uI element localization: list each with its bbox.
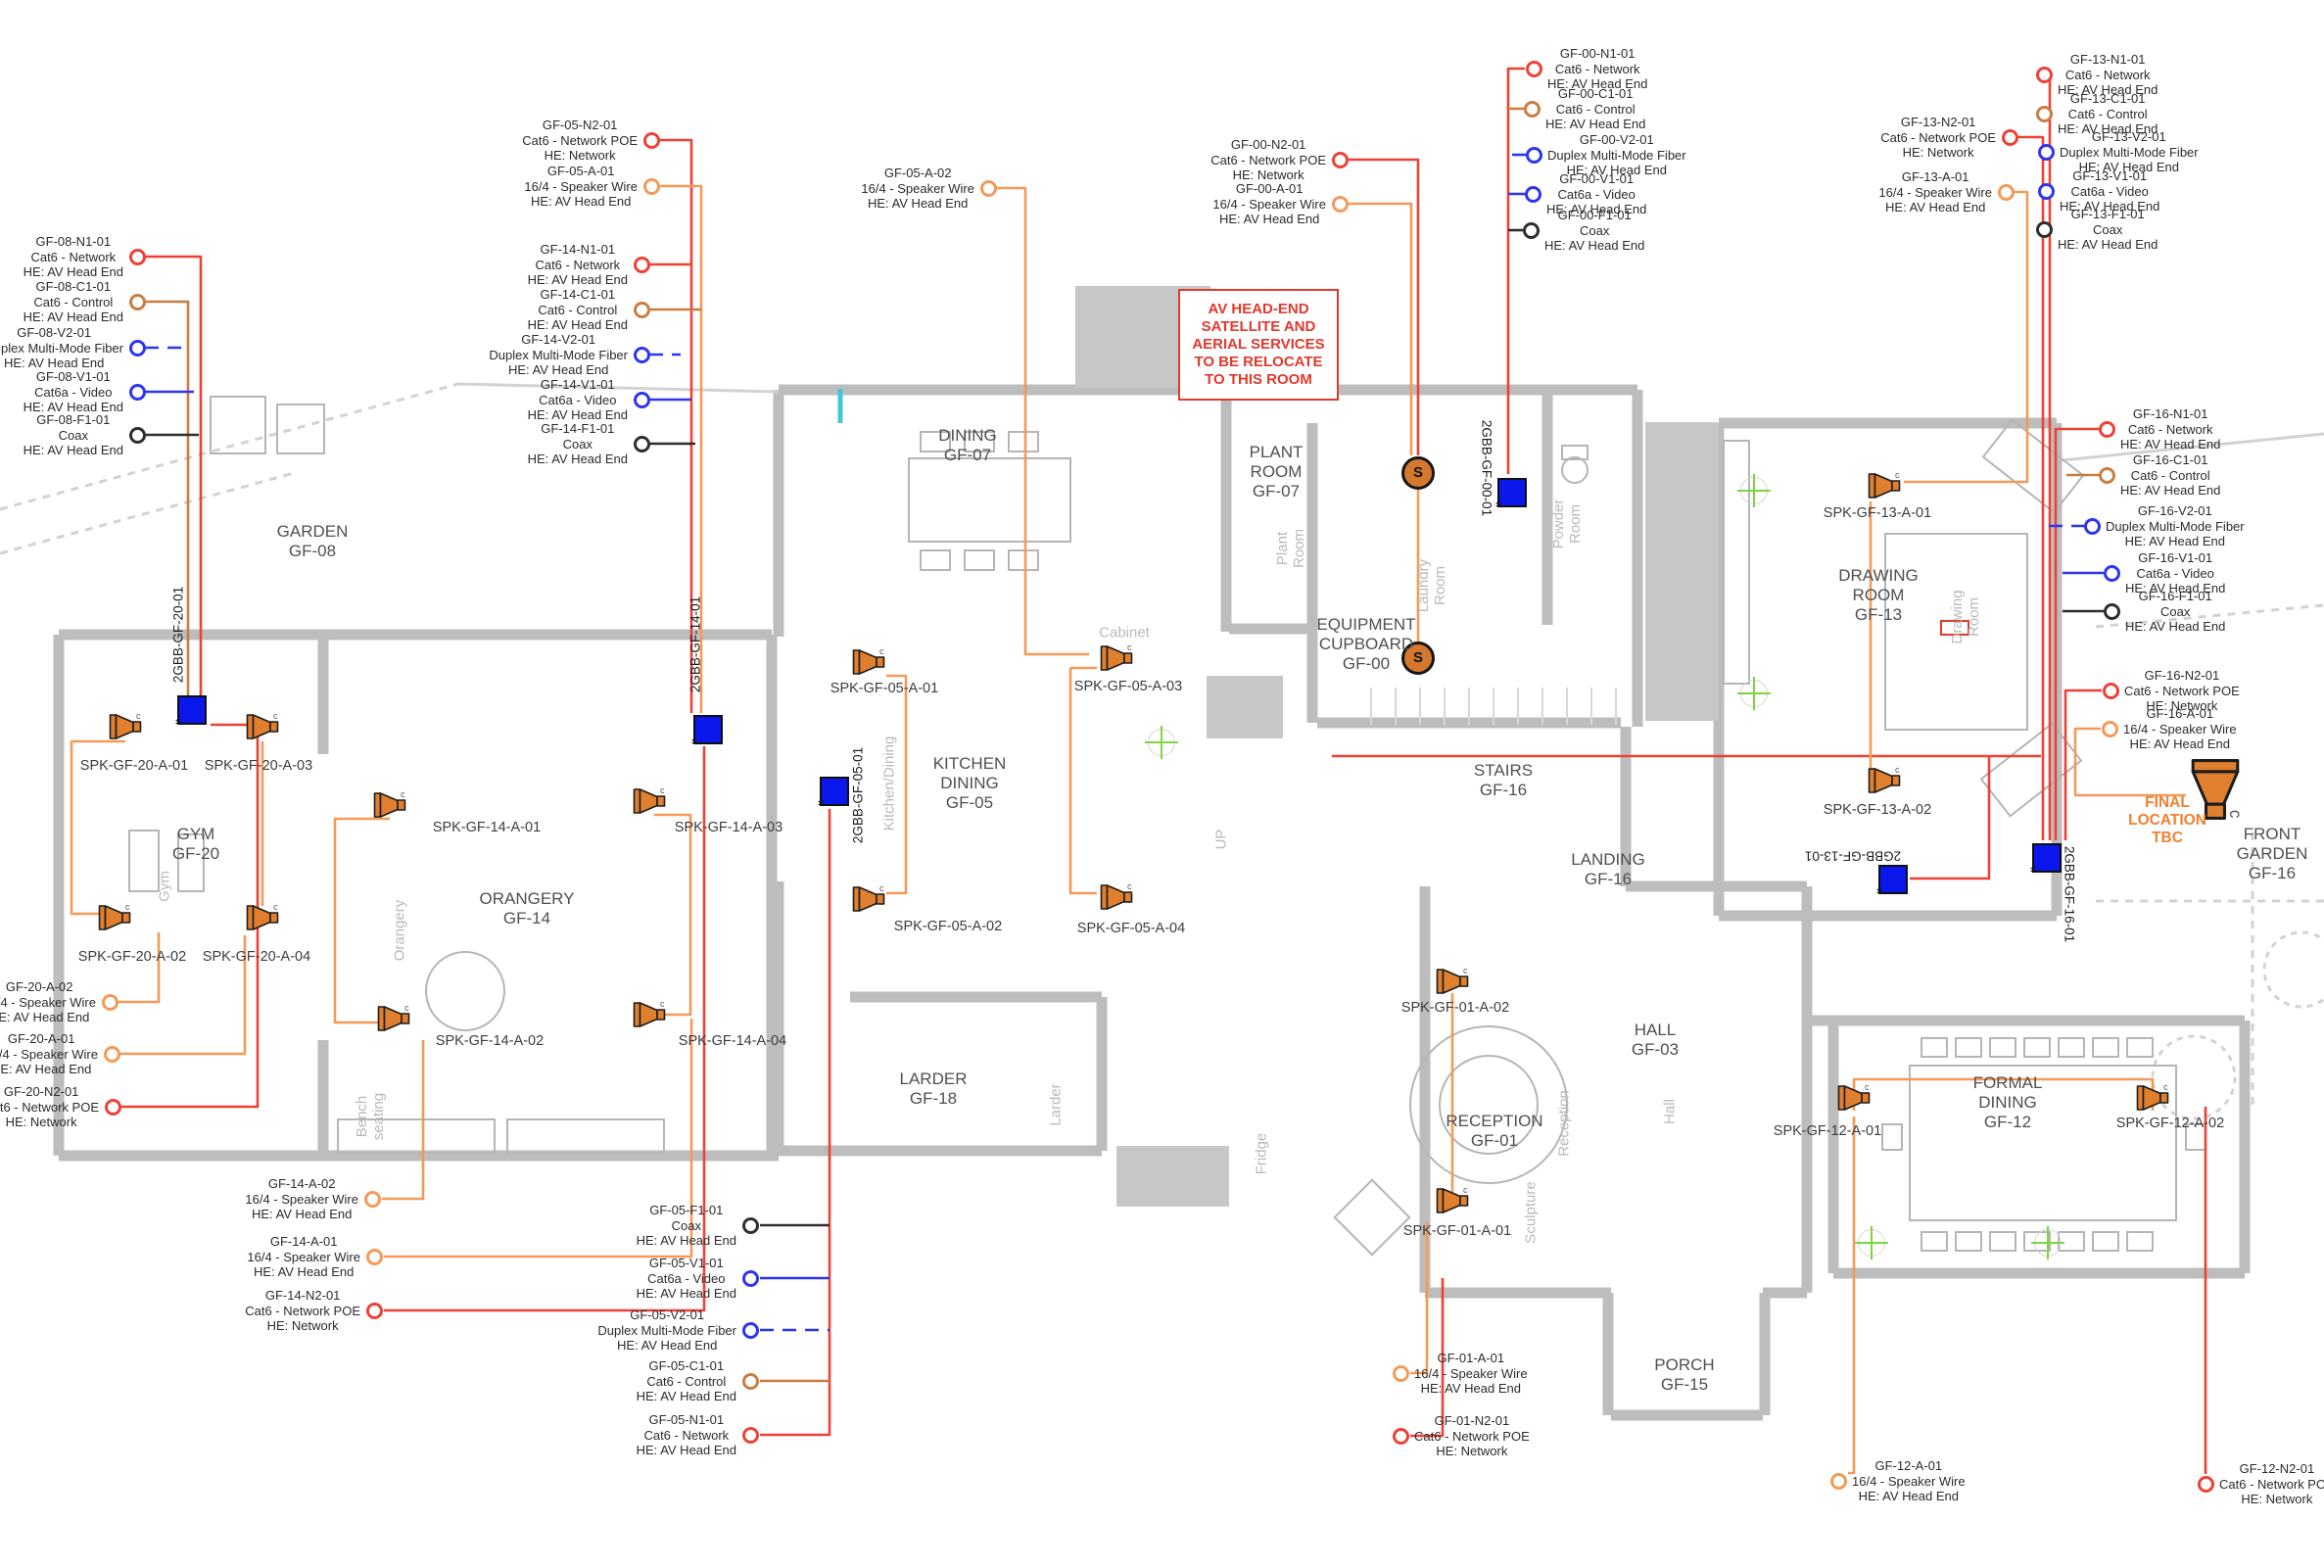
- speaker-icon: c: [98, 901, 131, 934]
- callout-cable: Duplex Multi-Mode Fiber: [1547, 147, 1686, 163]
- cable-run-speaker: [996, 188, 1089, 654]
- speaker-label: SPK-GF-20-A-01: [80, 758, 188, 774]
- room-label: EQUIPMENT CUPBOARD GF-00: [1316, 615, 1415, 674]
- svg-text:c: c: [1127, 642, 1132, 652]
- cable-callout: GF-20-N2-01Cat6 - Network POEHE: Network: [0, 1084, 99, 1130]
- cable-terminal: [2002, 129, 2018, 146]
- av-panel: w: [177, 695, 207, 725]
- callout-id: GF-14-V2-01: [489, 332, 628, 348]
- callout-cable: Cat6 - Network: [637, 1427, 736, 1443]
- cable-terminal: [1393, 1428, 1409, 1445]
- callout-dest: HE: Network: [2219, 1492, 2324, 1507]
- callout-cable: Cat6 - Network: [2120, 421, 2220, 437]
- callout-cable: 16/4 - Speaker Wire: [247, 1249, 360, 1264]
- callout-id: GF-16-F1-01: [2125, 589, 2225, 604]
- callout-cable: Cat6 - Network: [528, 257, 628, 272]
- callout-cable: Cat6 - Network POE: [2219, 1476, 2324, 1492]
- cable-run-network: [2016, 137, 2043, 840]
- callout-cable: Cat6a - Video: [528, 392, 628, 407]
- speaker-label: SPK-GF-12-A-01: [1774, 1123, 1881, 1139]
- callout-cable: Cat6a - Video: [2125, 565, 2225, 581]
- cable-terminal: [742, 1217, 759, 1234]
- callout-cable: 16/4 - Speaker Wire: [0, 1046, 98, 1062]
- svg-text:c: c: [404, 1003, 409, 1013]
- callout-dest: HE: AV Head End: [2058, 237, 2158, 253]
- callout-dest: HE: AV Head End: [0, 1010, 96, 1025]
- callout-id: GF-00-A-01: [1212, 181, 1326, 197]
- svg-text:c: c: [879, 883, 884, 893]
- callout-dest: HE: Network: [522, 148, 638, 164]
- cable-callout: GF-05-N2-01Cat6 - Network POEHE: Network: [522, 118, 638, 164]
- room-name-light: Fridge: [1254, 1133, 1270, 1175]
- cable-callout: GF-14-F1-01CoaxHE: AV Head End: [528, 421, 628, 467]
- callout-dest: HE: AV Head End: [637, 1233, 736, 1249]
- callout-cable: Coax: [1544, 222, 1644, 238]
- callout-cable: Cat6 - Network POE: [1414, 1428, 1530, 1444]
- cable-run-speaker: [1904, 192, 2027, 482]
- callout-dest: HE: AV Head End: [24, 264, 123, 280]
- callout-cable: Duplex Multi-Mode Fiber: [2060, 144, 2199, 160]
- cable-terminal: [1524, 101, 1541, 118]
- callout-cable: Cat6 - Network: [1547, 61, 1647, 76]
- callout-id: GF-05-A-01: [524, 164, 638, 179]
- callout-id: GF-12-A-01: [1852, 1458, 1966, 1474]
- room-label: RECEPTION GF-01: [1446, 1112, 1542, 1151]
- cable-run-network: [2056, 429, 2100, 840]
- cable-terminal: [1998, 184, 2015, 201]
- callout-id: GF-14-V1-01: [528, 377, 628, 393]
- callout-id: GF-05-A-02: [861, 166, 974, 181]
- av-panel: w: [820, 777, 849, 806]
- room-label: DRAWING ROOM GF-13: [1838, 566, 1919, 625]
- cable-terminal: [742, 1270, 759, 1287]
- callout-dest: HE: AV Head End: [489, 362, 628, 378]
- callout-id: GF-16-C1-01: [2120, 452, 2220, 468]
- room-name-light: Hall: [1662, 1099, 1679, 1124]
- cable-run-network: [1508, 69, 1525, 474]
- room-label: FORMAL DINING GF-12: [1973, 1073, 2043, 1132]
- panel-label: 2GBB-GF-14-01: [688, 596, 703, 692]
- cable-run-network: [121, 725, 258, 1107]
- panel-w-mark: w: [2028, 867, 2038, 874]
- cable-terminal: [634, 302, 650, 318]
- callout-id: GF-20-A-01: [0, 1031, 98, 1047]
- callout-dest: HE: AV Head End: [2123, 736, 2237, 752]
- callout-id: GF-20-A-02: [0, 979, 96, 995]
- room-label: LARDER GF-18: [900, 1069, 968, 1109]
- callout-cable: Cat6 - Network POE: [2124, 683, 2240, 698]
- svg-text:c: c: [1463, 1185, 1468, 1195]
- cable-callout: GF-20-A-0216/4 - Speaker WireHE: AV Head…: [0, 979, 96, 1025]
- cable-run-network: [2065, 690, 2102, 840]
- callout-id: GF-00-F1-01: [1544, 208, 1644, 223]
- callout-dest: HE: AV Head End: [861, 196, 974, 212]
- cable-terminal: [105, 1099, 121, 1116]
- cable-callout: GF-01-N2-01Cat6 - Network POEHE: Network: [1414, 1413, 1530, 1459]
- callout-dest: HE: AV Head End: [528, 317, 628, 333]
- callout-id: GF-13-C1-01: [2058, 91, 2158, 107]
- panel-label: 2GBB-GF-00-01: [1480, 420, 1494, 516]
- callout-id: GF-05-C1-01: [637, 1358, 736, 1374]
- speaker-icon: c: [852, 882, 885, 916]
- callout-dest: HE: AV Head End: [2120, 483, 2220, 499]
- callout-id: GF-05-F1-01: [637, 1203, 736, 1218]
- cable-terminal: [2104, 603, 2120, 620]
- speaker-icon: c: [1436, 965, 1469, 998]
- callout-dest: HE: AV Head End: [0, 1062, 98, 1077]
- cable-callout: GF-16-V2-01Duplex Multi-Mode FiberHE: AV…: [2106, 503, 2245, 549]
- cable-terminal: [2103, 683, 2119, 699]
- speaker-icon: c: [377, 1002, 410, 1035]
- callout-dest: HE: Network: [245, 1318, 360, 1334]
- cable-terminal: [129, 249, 146, 265]
- cable-terminal: [2038, 183, 2055, 200]
- callout-id: GF-08-N1-01: [24, 234, 123, 250]
- speaker-label: SPK-GF-14-A-01: [433, 820, 541, 835]
- callout-id: GF-14-N2-01: [245, 1288, 360, 1304]
- cable-terminal: [643, 132, 660, 149]
- callout-id: GF-00-V1-01: [1546, 171, 1646, 187]
- callout-dest: HE: Network: [1880, 145, 1996, 161]
- callout-cable: 16/4 - Speaker Wire: [1878, 184, 1992, 200]
- speaker-icon: c: [1868, 764, 1901, 797]
- room-name-light: Orangery: [392, 900, 408, 962]
- cable-callout: GF-13-F1-01CoaxHE: AV Head End: [2058, 207, 2158, 253]
- speaker-label: SPK-GF-05-A-03: [1074, 679, 1182, 694]
- cable-callout: GF-08-C1-01Cat6 - ControlHE: AV Head End: [24, 279, 123, 325]
- room-label: GARDEN GF-08: [277, 522, 349, 561]
- callout-cable: Cat6 - Network: [2058, 67, 2158, 82]
- callout-cable: 16/4 - Speaker Wire: [1212, 196, 1326, 212]
- callout-dest: HE: AV Head End: [637, 1443, 736, 1458]
- cable-callout: GF-16-C1-01Cat6 - ControlHE: AV Head End: [2120, 452, 2220, 499]
- cable-run-speaker: [382, 1040, 423, 1199]
- cable-terminal: [129, 427, 146, 444]
- crosshair-icon: [2034, 1229, 2062, 1257]
- cable-run-speaker: [119, 932, 159, 1002]
- cable-callout: GF-00-F1-01CoaxHE: AV Head End: [1544, 208, 1644, 254]
- cable-callout: GF-00-N1-01Cat6 - NetworkHE: AV Head End: [1547, 46, 1647, 92]
- callout-dest: HE: AV Head End: [24, 443, 123, 458]
- callout-id: GF-00-N1-01: [1547, 46, 1647, 62]
- callout-id: GF-13-N2-01: [1880, 115, 1996, 130]
- svg-text:c: c: [1865, 1082, 1870, 1092]
- callout-dest: HE: AV Head End: [528, 272, 628, 288]
- callout-id: GF-14-C1-01: [528, 287, 628, 303]
- cable-callout: GF-05-A-0216/4 - Speaker WireHE: AV Head…: [861, 166, 974, 212]
- callout-dest: HE: AV Head End: [2125, 619, 2225, 635]
- speaker-label: SPK-GF-13-A-02: [1824, 802, 1931, 818]
- crosshair-icon: [1858, 1229, 1885, 1257]
- cable-callout: GF-08-V2-01Duplex Multi-Mode FiberHE: AV…: [0, 325, 123, 371]
- callout-dest: HE: AV Head End: [245, 1207, 358, 1222]
- room-label: LANDING GF-16: [1571, 850, 1645, 889]
- callout-id: GF-00-N2-01: [1210, 137, 1326, 153]
- cable-terminal: [742, 1373, 759, 1390]
- callout-cable: 16/4 - Speaker Wire: [1414, 1365, 1528, 1381]
- cable-run-speaker: [1348, 204, 1411, 455]
- svg-text:c: c: [2226, 810, 2245, 819]
- cable-run-speaker: [335, 819, 390, 1022]
- cable-terminal: [129, 384, 146, 401]
- cable-terminal: [643, 178, 660, 195]
- cable-run-speaker: [1070, 668, 1097, 893]
- callout-id: GF-16-N2-01: [2124, 668, 2240, 684]
- cable-callout: GF-05-A-0116/4 - Speaker WireHE: AV Head…: [524, 164, 638, 210]
- cable-terminal: [1830, 1473, 1847, 1490]
- cable-run-network: [1910, 757, 1989, 879]
- callout-cable: Cat6a - Video: [1546, 186, 1646, 202]
- cable-terminal: [104, 1046, 120, 1063]
- relocation-note: AV HEAD-END SATELLITE AND AERIAL SERVICE…: [1178, 289, 1339, 401]
- callout-id: GF-08-F1-01: [24, 412, 123, 428]
- callout-dest: HE: AV Head End: [247, 1264, 360, 1280]
- callout-id: GF-16-N1-01: [2120, 406, 2220, 422]
- av-panel: w: [693, 715, 723, 744]
- callout-id: GF-01-A-01: [1414, 1351, 1528, 1366]
- panel-w-mark: w: [816, 800, 826, 807]
- crosshair-icon: [1740, 477, 1768, 504]
- cable-terminal: [364, 1191, 381, 1208]
- speaker-label: SPK-GF-20-A-04: [203, 949, 310, 965]
- room-name-light: Plant Room: [1274, 529, 1307, 568]
- panel-w-mark: w: [689, 738, 699, 745]
- callout-id: GF-13-V1-01: [2060, 168, 2159, 184]
- callout-id: GF-05-N2-01: [522, 118, 638, 133]
- speaker-icon: c: [633, 784, 666, 818]
- crosshair-icon: [1740, 680, 1768, 707]
- callout-id: GF-12-N2-01: [2219, 1461, 2324, 1477]
- callout-dest: HE: AV Head End: [1545, 117, 1645, 132]
- callout-cable: Duplex Multi-Mode Fiber: [489, 347, 628, 362]
- cable-terminal: [1525, 186, 1541, 203]
- svg-text:c: c: [401, 789, 405, 799]
- svg-text:c: c: [1895, 470, 1900, 480]
- callout-dest: HE: AV Head End: [1212, 212, 1326, 227]
- callout-id: GF-13-N1-01: [2058, 52, 2158, 68]
- callout-id: GF-05-V2-01: [597, 1307, 736, 1323]
- svg-text:c: c: [1463, 966, 1468, 975]
- room-name-light: Kitchen/Dining: [881, 736, 898, 832]
- room-label: GYM GF-20: [172, 825, 219, 864]
- cable-terminal: [1526, 147, 1542, 164]
- panel-label: 2GBB-GF-05-01: [851, 747, 866, 843]
- callout-dest: HE: AV Head End: [2106, 534, 2245, 549]
- panel-label: 2GBB-GF-16-01: [2063, 846, 2077, 942]
- room-name-light: UP: [1213, 830, 1230, 850]
- callout-cable: 16/4 - Speaker Wire: [245, 1191, 358, 1207]
- callout-cable: Cat6 - Control: [528, 302, 628, 317]
- callout-dest: HE: AV Head End: [24, 309, 123, 325]
- room-name-light: Cabinet: [1099, 625, 1150, 641]
- av-panel: w: [1497, 478, 1527, 507]
- av-panel: w: [1878, 865, 1908, 894]
- callout-id: GF-14-N1-01: [528, 242, 628, 258]
- cable-terminal: [2104, 565, 2120, 582]
- cable-terminal: [742, 1427, 759, 1444]
- speaker-label: SPK-GF-13-A-01: [1824, 505, 1931, 521]
- callout-cable: Duplex Multi-Mode Fiber: [0, 340, 123, 356]
- callout-cable: Cat6 - Network POE: [522, 132, 638, 148]
- callout-dest: HE: AV Head End: [597, 1338, 736, 1354]
- svg-text:c: c: [660, 999, 665, 1009]
- svg-text:c: c: [2163, 1082, 2168, 1092]
- room-label: PORCH GF-15: [1654, 1355, 1714, 1395]
- speaker-label: SPK-GF-20-A-02: [78, 949, 186, 965]
- cable-run-network: [760, 809, 830, 1435]
- callout-cable: Cat6 - Control: [2058, 106, 2158, 121]
- cable-callout: GF-13-N2-01Cat6 - Network POEHE: Network: [1880, 115, 1996, 161]
- callout-dest: HE: AV Head End: [637, 1389, 736, 1404]
- callout-cable: Coax: [2058, 221, 2158, 237]
- cable-callout: GF-16-F1-01CoaxHE: AV Head End: [2125, 589, 2225, 635]
- speaker-icon: c: [2136, 1081, 2169, 1115]
- cable-terminal: [2036, 106, 2053, 122]
- callout-dest: HE: AV Head End: [524, 194, 638, 210]
- room-name-light: Drawing Room: [1949, 590, 1982, 643]
- callout-cable: Cat6a - Video: [24, 384, 123, 400]
- callout-dest: HE: AV Head End: [1878, 200, 1992, 215]
- cable-callout: GF-14-V2-01Duplex Multi-Mode FiberHE: AV…: [489, 332, 628, 378]
- callout-id: GF-14-A-02: [245, 1176, 358, 1192]
- cable-terminal: [129, 340, 146, 356]
- cable-run-speaker: [1848, 1117, 1854, 1473]
- svg-text:c: c: [273, 711, 278, 721]
- cable-terminal: [102, 994, 119, 1011]
- callout-cable: Cat6 - Network POE: [245, 1303, 360, 1318]
- room-name-light: Reception: [1556, 1090, 1573, 1157]
- callout-id: GF-16-V1-01: [2125, 550, 2225, 566]
- callout-cable: Coax: [2125, 603, 2225, 619]
- room-label: PLANT ROOM GF-07: [1250, 443, 1304, 501]
- cable-terminal: [742, 1322, 759, 1339]
- cable-terminal: [2036, 221, 2053, 238]
- cable-run-speaker: [654, 815, 690, 1015]
- callout-dest: HE: Network: [1414, 1444, 1530, 1459]
- cable-terminal: [366, 1303, 383, 1319]
- speaker-icon: c: [633, 998, 666, 1031]
- callout-dest: HE: AV Head End: [528, 451, 628, 467]
- callout-cable: Cat6 - Control: [637, 1373, 736, 1389]
- cable-callout: GF-00-C1-01Cat6 - ControlHE: AV Head End: [1545, 86, 1645, 132]
- callout-id: GF-00-C1-01: [1545, 86, 1645, 102]
- cable-callout: GF-16-N1-01Cat6 - NetworkHE: AV Head End: [2120, 406, 2220, 452]
- final-location-note: FINAL LOCATION TBC: [2128, 794, 2206, 847]
- callout-cable: Cat6 - Control: [1545, 101, 1645, 117]
- cable-callout: GF-00-A-0116/4 - Speaker WireHE: AV Head…: [1212, 181, 1326, 227]
- cable-terminal: [634, 347, 650, 363]
- speaker-label: SPK-GF-01-A-02: [1401, 1000, 1509, 1016]
- cable-callout: GF-13-A-0116/4 - Speaker WireHE: AV Head…: [1878, 169, 1992, 215]
- room-name-light: Larder: [1048, 1083, 1065, 1125]
- callout-cable: Cat6 - Control: [24, 294, 123, 309]
- av-panel: w: [2032, 843, 2062, 873]
- callout-id: GF-13-F1-01: [2058, 207, 2158, 222]
- cable-callout: GF-14-A-0216/4 - Speaker WireHE: AV Head…: [245, 1176, 358, 1222]
- cable-terminal: [2038, 144, 2055, 161]
- callout-cable: Coax: [528, 436, 628, 451]
- svg-text:c: c: [660, 785, 665, 795]
- cable-callout: GF-14-V1-01Cat6a - VideoHE: AV Head End: [528, 377, 628, 423]
- cable-terminal: [634, 392, 650, 408]
- callout-id: GF-01-N2-01: [1414, 1413, 1530, 1429]
- cable-terminal: [2036, 67, 2053, 83]
- cable-callout: GF-08-N1-01Cat6 - NetworkHE: AV Head End: [24, 234, 123, 280]
- cable-terminal: [2198, 1476, 2214, 1493]
- speaker-label: SPK-GF-14-A-02: [436, 1033, 544, 1049]
- callout-id: GF-13-A-01: [1878, 169, 1992, 185]
- svg-text:c: c: [125, 902, 130, 912]
- callout-dest: HE: AV Head End: [1852, 1489, 1966, 1504]
- callout-id: GF-05-V1-01: [637, 1256, 736, 1271]
- panel-w-mark: w: [1874, 888, 1884, 895]
- svg-text:c: c: [1895, 765, 1900, 775]
- callout-id: GF-13-V2-01: [2060, 129, 2199, 145]
- panel-label: 2GBB-GF-20-01: [171, 587, 186, 683]
- callout-id: GF-05-N1-01: [637, 1412, 736, 1428]
- speaker-label: SPK-GF-05-A-01: [830, 681, 938, 696]
- speaker-icon: c: [852, 645, 885, 679]
- speaker-label: SPK-GF-20-A-03: [205, 758, 312, 774]
- callout-dest: HE: AV Head End: [1544, 238, 1644, 254]
- svg-text:c: c: [1127, 881, 1132, 891]
- svg-text:c: c: [879, 646, 884, 656]
- cable-terminal: [980, 180, 997, 197]
- room-label: STAIRS GF-16: [1474, 761, 1533, 800]
- room-name-light: Sculpture: [1523, 1181, 1540, 1243]
- room-name-light: Powder Room: [1550, 499, 1584, 549]
- callout-cable: Duplex Multi-Mode Fiber: [2106, 518, 2245, 534]
- cable-terminal: [2084, 518, 2101, 535]
- callout-id: GF-16-A-01: [2123, 706, 2237, 722]
- cable-terminal: [1523, 222, 1540, 239]
- callout-id: GF-16-V2-01: [2106, 503, 2245, 519]
- cable-terminal: [1526, 61, 1542, 77]
- room-label: HALL GF-03: [1632, 1021, 1679, 1060]
- speaker-icon: c: [246, 710, 279, 743]
- room-name-light: Bench seating: [354, 1093, 387, 1140]
- speaker-icon: c: [109, 710, 142, 743]
- floorplan-canvas: AV HEAD-END SATELLITE AND AERIAL SERVICE…: [0, 0, 2324, 1568]
- panel-w-mark: w: [173, 719, 183, 726]
- svg-text:c: c: [136, 711, 141, 721]
- cable-callout: GF-05-C1-01Cat6 - ControlHE: AV Head End: [637, 1358, 736, 1404]
- speaker-label: SPK-GF-05-A-04: [1077, 921, 1185, 936]
- callout-cable: 16/4 - Speaker Wire: [524, 178, 638, 194]
- room-name-light: Gym: [157, 871, 173, 902]
- cable-callout: GF-01-A-0116/4 - Speaker WireHE: AV Head…: [1414, 1351, 1528, 1397]
- speaker-label: SPK-GF-01-A-01: [1403, 1223, 1511, 1239]
- cable-callout: GF-14-C1-01Cat6 - ControlHE: AV Head End: [528, 287, 628, 333]
- callout-id: GF-08-V1-01: [24, 369, 123, 385]
- callout-id: GF-08-C1-01: [24, 279, 123, 295]
- callout-id: GF-14-F1-01: [528, 421, 628, 437]
- panel-w-mark: w: [1494, 501, 1503, 508]
- cable-terminal: [1332, 152, 1349, 168]
- cable-callout: GF-12-A-0116/4 - Speaker WireHE: AV Head…: [1852, 1458, 1966, 1504]
- speaker-icon: c: [1837, 1081, 1871, 1115]
- cable-callout: GF-05-V2-01Duplex Multi-Mode FiberHE: AV…: [597, 1307, 736, 1354]
- cable-terminal: [1332, 196, 1349, 213]
- cable-callout: GF-00-N2-01Cat6 - Network POEHE: Network: [1210, 137, 1326, 183]
- room-label: KITCHEN DINING GF-05: [933, 754, 1007, 813]
- callout-cable: 16/4 - Speaker Wire: [0, 994, 96, 1010]
- cable-callout: GF-05-N1-01Cat6 - NetworkHE: AV Head End: [637, 1412, 736, 1458]
- cable-callout: GF-12-N2-01Cat6 - Network POEHE: Network: [2219, 1461, 2324, 1507]
- cable-callout: GF-14-N1-01Cat6 - NetworkHE: AV Head End: [528, 242, 628, 288]
- callout-cable: Duplex Multi-Mode Fiber: [597, 1322, 736, 1338]
- cable-terminal: [129, 294, 146, 310]
